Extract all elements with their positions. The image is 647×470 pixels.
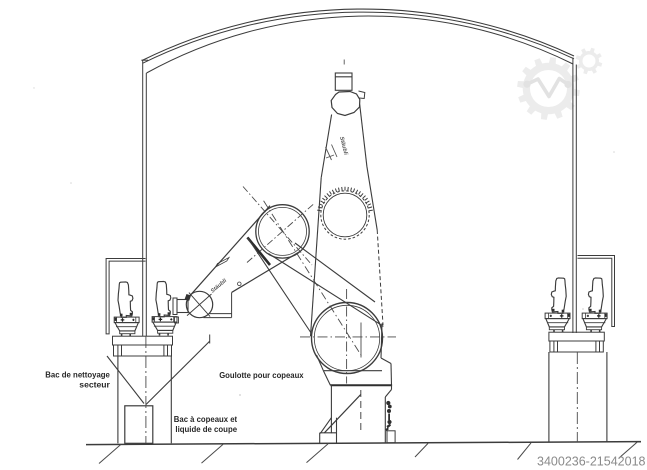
svg-text:liquide de coupe: liquide de coupe (175, 424, 237, 434)
svg-text:Goulotte pour copeaux: Goulotte pour copeaux (219, 370, 304, 380)
svg-text:Stäubli: Stäubli (338, 136, 348, 156)
svg-text:Bac à copeaux et: Bac à copeaux et (174, 414, 237, 424)
svg-text:secteur: secteur (79, 381, 110, 390)
svg-text:Stäubli: Stäubli (210, 278, 228, 295)
svg-text:3400236-21542018: 3400236-21542018 (537, 455, 646, 469)
svg-text:Bac de nettoyage: Bac de nettoyage (45, 371, 110, 380)
